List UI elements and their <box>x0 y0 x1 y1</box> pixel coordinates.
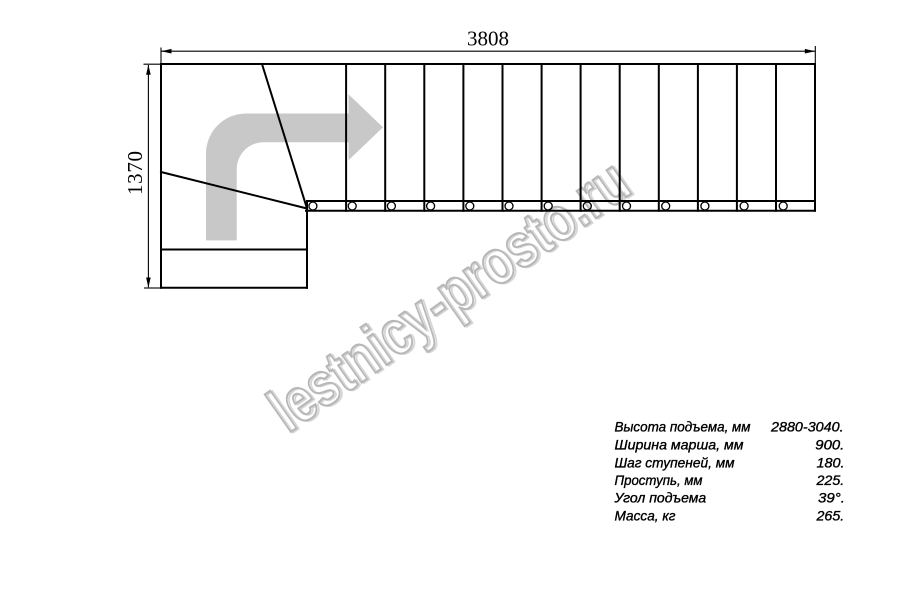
svg-text:Проступь, мм: Проступь, мм <box>615 473 704 488</box>
svg-text:180.: 180. <box>817 455 845 470</box>
svg-text:Ширина марша, мм: Ширина марша, мм <box>615 438 745 453</box>
svg-text:Масса, кг: Масса, кг <box>615 509 676 524</box>
svg-text:225.: 225. <box>815 473 844 488</box>
svg-text:3808: 3808 <box>467 27 509 51</box>
svg-text:900.: 900. <box>815 438 844 453</box>
svg-text:1370: 1370 <box>123 151 147 195</box>
svg-text:2880-3040.: 2880-3040. <box>770 420 844 435</box>
svg-text:265.: 265. <box>815 509 844 524</box>
svg-text:39°.: 39°. <box>818 491 845 506</box>
svg-text:Высота подъема, мм: Высота подъема, мм <box>615 420 752 435</box>
svg-text:Шаг ступеней, мм: Шаг ступеней, мм <box>615 455 736 470</box>
svg-text:Угол подъема: Угол подъема <box>613 491 706 506</box>
